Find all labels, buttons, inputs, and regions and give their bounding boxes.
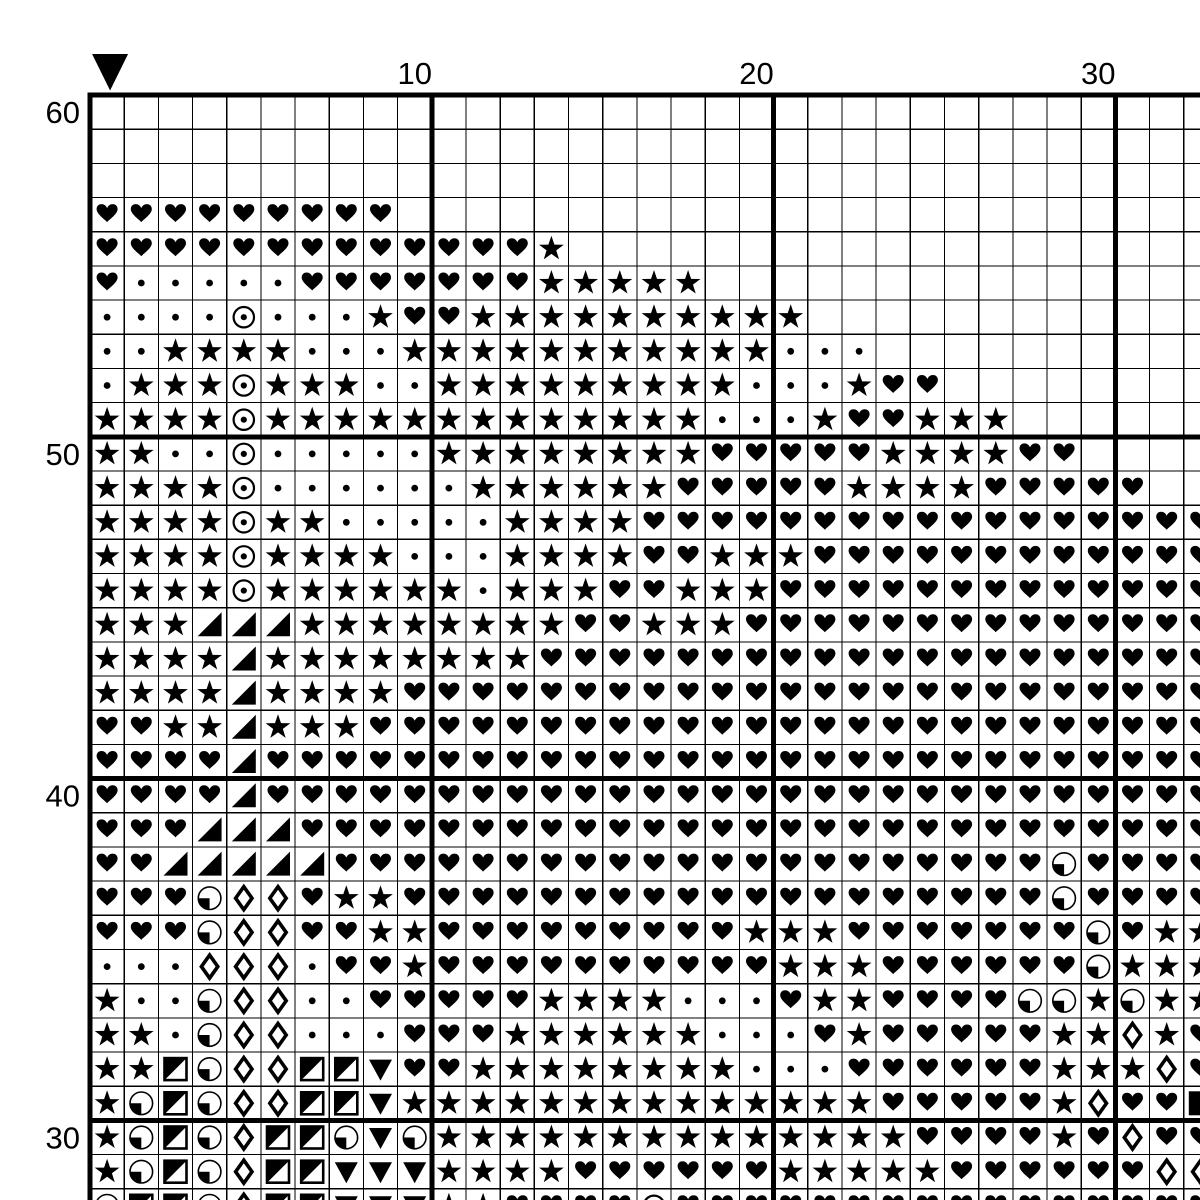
stitch-cell-small-dot — [309, 348, 316, 355]
row-number-label: 30 — [46, 1121, 80, 1156]
stitch-cell-small-dot — [411, 451, 418, 458]
stitch-cell-small-dot — [856, 348, 863, 355]
stitch-cell-small-dot — [411, 382, 418, 389]
stitch-cell-small-dot — [309, 963, 316, 970]
stitch-cell-small-dot — [719, 1032, 726, 1039]
stitch-cell-square-with-upper-left-diagonal-half-black — [130, 1195, 152, 1200]
stitch-cell-small-dot — [719, 416, 726, 423]
stitch-cell-small-dot — [480, 553, 487, 560]
chart-background — [0, 0, 1200, 1200]
stitch-cell-square-with-upper-left-diagonal-half-black — [301, 1058, 323, 1080]
stitch-cell-square-with-upper-left-diagonal-half-black — [267, 1127, 289, 1149]
cross-stitch-pattern-chart: 60504030102030 — [0, 0, 1200, 1200]
column-number-label: 30 — [1081, 56, 1115, 91]
stitch-cell-square-with-upper-left-diagonal-half-black — [301, 1092, 323, 1114]
stitch-cell-square-with-upper-left-diagonal-half-black — [301, 1127, 323, 1149]
stitch-cell-small-dot — [309, 485, 316, 492]
stitch-cell-small-dot — [104, 382, 111, 389]
stitch-cell-small-dot — [446, 519, 453, 526]
stitch-cell-small-dot — [377, 451, 384, 458]
stitch-cell-small-dot — [822, 348, 829, 355]
stitch-cell-small-dot — [753, 416, 760, 423]
column-number-label: 10 — [397, 56, 431, 91]
stitch-cell-small-dot — [446, 485, 453, 492]
stitch-cell-square-with-upper-left-diagonal-half-black — [165, 1161, 187, 1183]
stitch-cell-square-with-upper-left-diagonal-half-black — [301, 1161, 323, 1183]
stitch-cell-small-dot — [411, 485, 418, 492]
stitch-cell-small-dot — [787, 1066, 794, 1073]
stitch-cell-small-dot — [377, 485, 384, 492]
stitch-cell-small-dot — [206, 280, 213, 287]
stitch-cell-small-dot — [138, 963, 145, 970]
stitch-cell-small-dot — [275, 451, 282, 458]
stitch-cell-small-dot — [753, 1066, 760, 1073]
stitch-cell-small-dot — [104, 963, 111, 970]
stitch-cell-small-dot — [343, 997, 350, 1004]
stitch-cell-small-dot — [104, 348, 111, 355]
stitch-cell-small-dot — [138, 314, 145, 321]
stitch-cell-small-dot — [309, 997, 316, 1004]
stitch-cell-black-down-triangle — [403, 1196, 426, 1200]
stitch-cell-small-dot — [480, 587, 487, 594]
stitch-cell-small-dot — [343, 451, 350, 458]
stitch-cell-small-dot — [446, 553, 453, 560]
stitch-cell-black-filled-square — [1189, 1091, 1200, 1115]
stitch-cell-small-dot — [685, 997, 692, 1004]
stitch-cell-square-with-upper-left-diagonal-half-black — [165, 1127, 187, 1149]
stitch-cell-small-dot — [753, 1032, 760, 1039]
stitch-cell-square-with-upper-left-diagonal-half-black — [267, 1161, 289, 1183]
stitch-cell-small-dot — [411, 553, 418, 560]
stitch-cell-small-dot — [787, 416, 794, 423]
row-number-label: 40 — [46, 779, 80, 814]
stitch-cell-small-dot — [172, 314, 179, 321]
stitch-cell-small-dot — [275, 280, 282, 287]
stitch-cell-small-dot — [377, 348, 384, 355]
stitch-cell-small-dot — [753, 997, 760, 1004]
stitch-cell-small-dot — [719, 997, 726, 1004]
stitch-cell-square-with-upper-left-diagonal-half-black — [165, 1195, 187, 1200]
stitch-cell-small-dot — [343, 348, 350, 355]
stitch-cell-small-dot — [822, 382, 829, 389]
stitch-cell-small-dot — [275, 485, 282, 492]
stitch-cell-black-down-triangle — [369, 1196, 392, 1200]
stitch-cell-small-dot — [138, 280, 145, 287]
stitch-cell-small-dot — [309, 451, 316, 458]
row-number-label: 50 — [46, 437, 80, 472]
stitch-cell-square-with-upper-left-diagonal-half-black — [267, 1195, 289, 1200]
stitch-cell-square-with-upper-left-diagonal-half-black — [165, 1092, 187, 1114]
stitch-cell-square-with-upper-left-diagonal-half-black — [301, 1195, 323, 1200]
stitch-cell-small-dot — [240, 280, 247, 287]
stitch-cell-small-dot — [822, 1066, 829, 1073]
stitch-cell-square-with-upper-left-diagonal-half-black — [165, 1058, 187, 1080]
pattern-grid-svg: 60504030102030 — [0, 0, 1200, 1200]
stitch-cell-small-dot — [787, 382, 794, 389]
stitch-cell-small-dot — [172, 963, 179, 970]
stitch-cell-small-dot — [138, 348, 145, 355]
stitch-cell-small-dot — [480, 519, 487, 526]
stitch-cell-small-dot — [377, 382, 384, 389]
row-number-label: 60 — [46, 95, 80, 130]
stitch-cell-small-dot — [343, 1032, 350, 1039]
stitch-cell-small-dot — [343, 314, 350, 321]
stitch-cell-small-dot — [172, 280, 179, 287]
stitch-cell-small-dot — [172, 1032, 179, 1039]
stitch-cell-small-dot — [206, 451, 213, 458]
stitch-cell-small-dot — [377, 1032, 384, 1039]
column-number-label: 20 — [739, 56, 773, 91]
stitch-cell-square-with-upper-left-diagonal-half-black — [335, 1058, 357, 1080]
stitch-cell-small-dot — [343, 519, 350, 526]
stitch-cell-small-dot — [343, 485, 350, 492]
stitch-cell-small-dot — [172, 997, 179, 1004]
stitch-cell-small-dot — [172, 451, 179, 458]
stitch-cell-black-down-triangle — [335, 1196, 358, 1200]
stitch-cell-small-dot — [275, 314, 282, 321]
stitch-cell-small-dot — [206, 314, 213, 321]
stitch-cell-small-dot — [787, 1032, 794, 1039]
stitch-cell-square-with-upper-left-diagonal-half-black — [335, 1092, 357, 1114]
stitch-cell-small-dot — [787, 348, 794, 355]
stitch-cell-small-dot — [377, 519, 384, 526]
stitch-cell-small-dot — [411, 519, 418, 526]
stitch-cell-small-dot — [753, 382, 760, 389]
stitch-cell-small-dot — [138, 997, 145, 1004]
stitch-cell-small-dot — [309, 314, 316, 321]
stitch-cell-small-dot — [309, 1032, 316, 1039]
stitch-cell-small-dot — [104, 314, 111, 321]
